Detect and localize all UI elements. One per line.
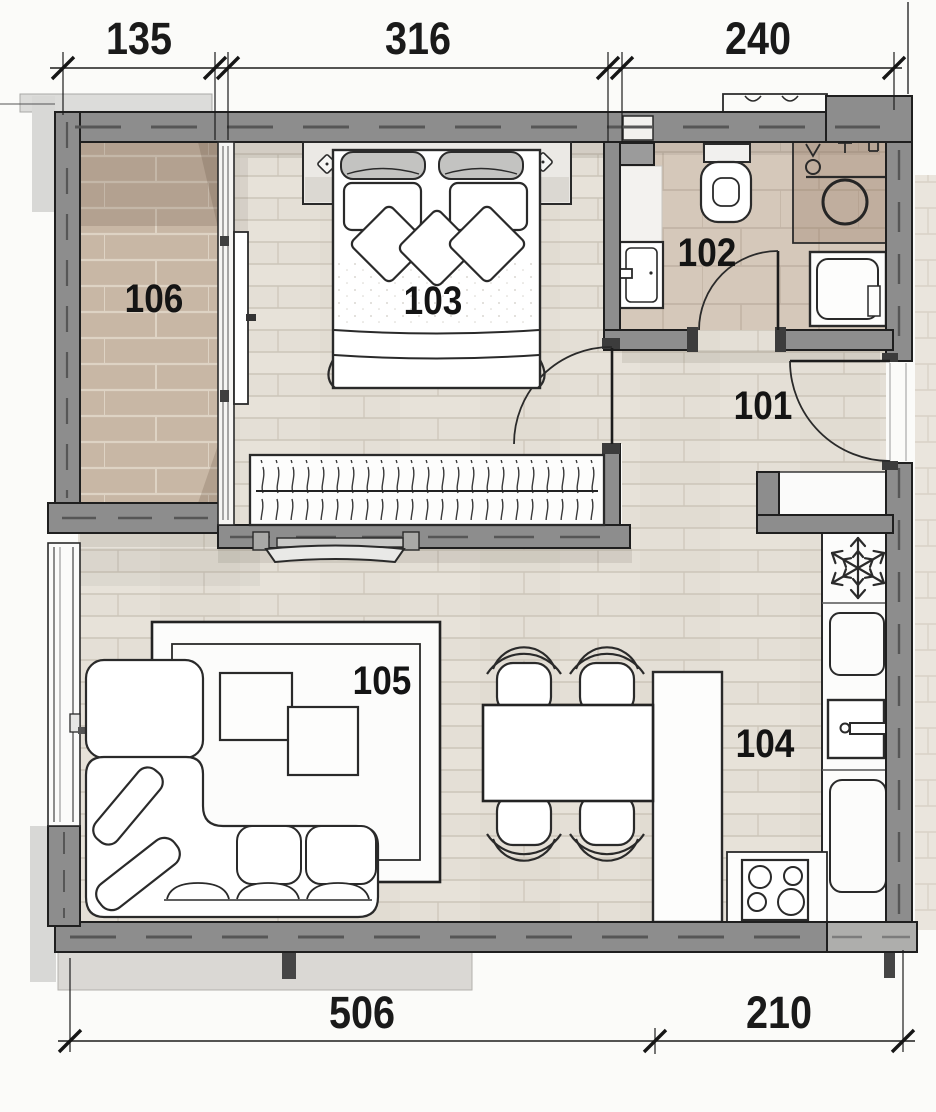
room-label-bathroom: 102 xyxy=(678,230,737,275)
sofa-chaise xyxy=(86,660,203,758)
sliding-door-handle xyxy=(246,314,256,321)
vent-duct xyxy=(620,143,654,165)
tv-screen xyxy=(266,546,404,563)
dimension-value: 316 xyxy=(385,14,451,64)
living-room-window xyxy=(48,543,80,826)
bed-pillow xyxy=(341,152,425,179)
left-facade-band-top xyxy=(32,96,55,212)
dimension-value: 240 xyxy=(725,14,791,64)
entry-closet-niche xyxy=(779,472,886,515)
tv-bracket xyxy=(253,532,269,550)
dining-table xyxy=(483,705,653,801)
room-label-kitchen: 104 xyxy=(736,721,795,766)
room-label-bedroom: 103 xyxy=(404,278,463,323)
shadow xyxy=(80,548,260,586)
balcony-top-shade xyxy=(80,142,218,226)
balcony-glazing xyxy=(218,142,234,525)
faucet-knob xyxy=(841,724,850,733)
lower-balcony-slab xyxy=(58,952,472,990)
bathroom-door-threshold xyxy=(695,330,778,350)
bathroom-door-jamb xyxy=(687,327,698,352)
floor-plan-page: 106 103 102 101 105 104 135 316 240 50 xyxy=(0,0,936,1112)
kitchen-island xyxy=(653,672,722,922)
sofa-back-cushion xyxy=(237,826,301,884)
entry-jamb xyxy=(882,461,898,470)
room-label-hall: 101 xyxy=(734,383,793,428)
neighbor-fixture-bowls xyxy=(745,96,798,101)
wall-bedroom-bath-divider xyxy=(604,142,620,348)
neighbor-fixture-outline xyxy=(723,94,827,113)
room-label-balcony: 106 xyxy=(125,276,184,321)
dimension-value: 210 xyxy=(746,988,812,1038)
sofa-seat-bolsters xyxy=(167,883,369,899)
room-label-living: 105 xyxy=(353,658,412,703)
bath-counter-top xyxy=(793,142,893,243)
floor-plan-drawing: 106 103 102 101 105 104 135 316 240 50 xyxy=(0,0,936,1112)
coffee-table xyxy=(220,673,292,740)
wall-top-right-corner xyxy=(826,96,912,142)
shower-seat xyxy=(868,286,880,316)
toilet-bowl xyxy=(701,162,751,222)
bedroom-door-jamb xyxy=(602,443,620,454)
entry-threshold-lines xyxy=(890,363,906,461)
dimension-value: 506 xyxy=(329,988,395,1038)
wall-bedroom-hall-divider xyxy=(604,444,620,528)
tv-bracket xyxy=(403,532,419,550)
sofa-back-cushion xyxy=(306,826,376,884)
slider-stop xyxy=(220,236,229,246)
dimension-value: 135 xyxy=(106,14,172,64)
sink-drain xyxy=(649,271,652,274)
bath-cabinet xyxy=(620,166,662,243)
coffee-table xyxy=(288,707,358,775)
right-exterior-masonry xyxy=(915,175,936,930)
wall-bath-bottom-right xyxy=(778,330,893,350)
lower-slab-joint-mark xyxy=(282,952,296,979)
shadow xyxy=(80,533,220,547)
lower-right-joint-mark xyxy=(884,952,895,978)
toilet-cistern xyxy=(704,144,750,162)
wall-closet-bottom xyxy=(757,515,893,533)
bathroom-door-jamb xyxy=(775,327,786,352)
slider-stop xyxy=(220,390,229,402)
balcony-sliding-door xyxy=(234,232,248,404)
bed-pillow xyxy=(439,152,523,179)
